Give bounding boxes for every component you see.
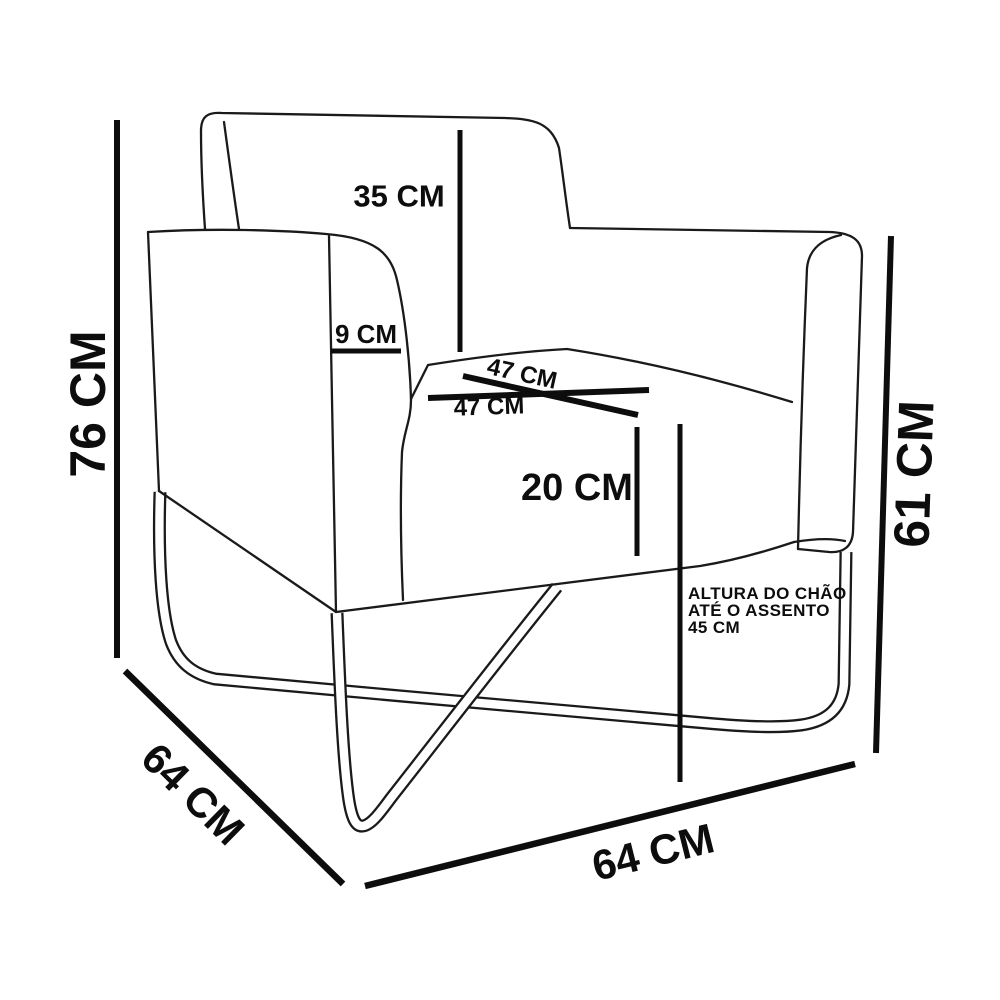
note-floor-to-seat-line1: ALTURA DO CHÃO <box>688 583 847 603</box>
dim-label-total-height: 76 CM <box>60 330 116 477</box>
dimension-diagram: 76 CM 35 CM 9 CM 47 CM 47 CM 20 CM ALTUR… <box>0 0 1000 1000</box>
note-floor-to-seat-line3: 45 CM <box>688 618 740 637</box>
armchair-diagram-canvas: 76 CM 35 CM 9 CM 47 CM 47 CM 20 CM ALTUR… <box>0 0 1000 1000</box>
dim-label-cushion-height: 20 CM <box>521 467 633 509</box>
dim-label-backrest-height: 35 CM <box>353 179 444 214</box>
chair-backrest-side-crease <box>224 122 239 229</box>
chair-left-armrest-outline <box>148 230 411 600</box>
chair-left-armrest-crease <box>329 236 336 612</box>
chair-left-armrest-left-edge <box>148 232 159 491</box>
dim-label-side-depth: 64 CM <box>132 734 253 854</box>
dim-label-armrest-thickness: 9 CM <box>335 319 397 349</box>
dim-label-seat-depth: 47 CM <box>453 392 525 421</box>
chair-drawing <box>148 113 862 826</box>
chair-sled-base <box>159 492 846 826</box>
dim-label-arm-height: 61 CM <box>883 399 944 548</box>
